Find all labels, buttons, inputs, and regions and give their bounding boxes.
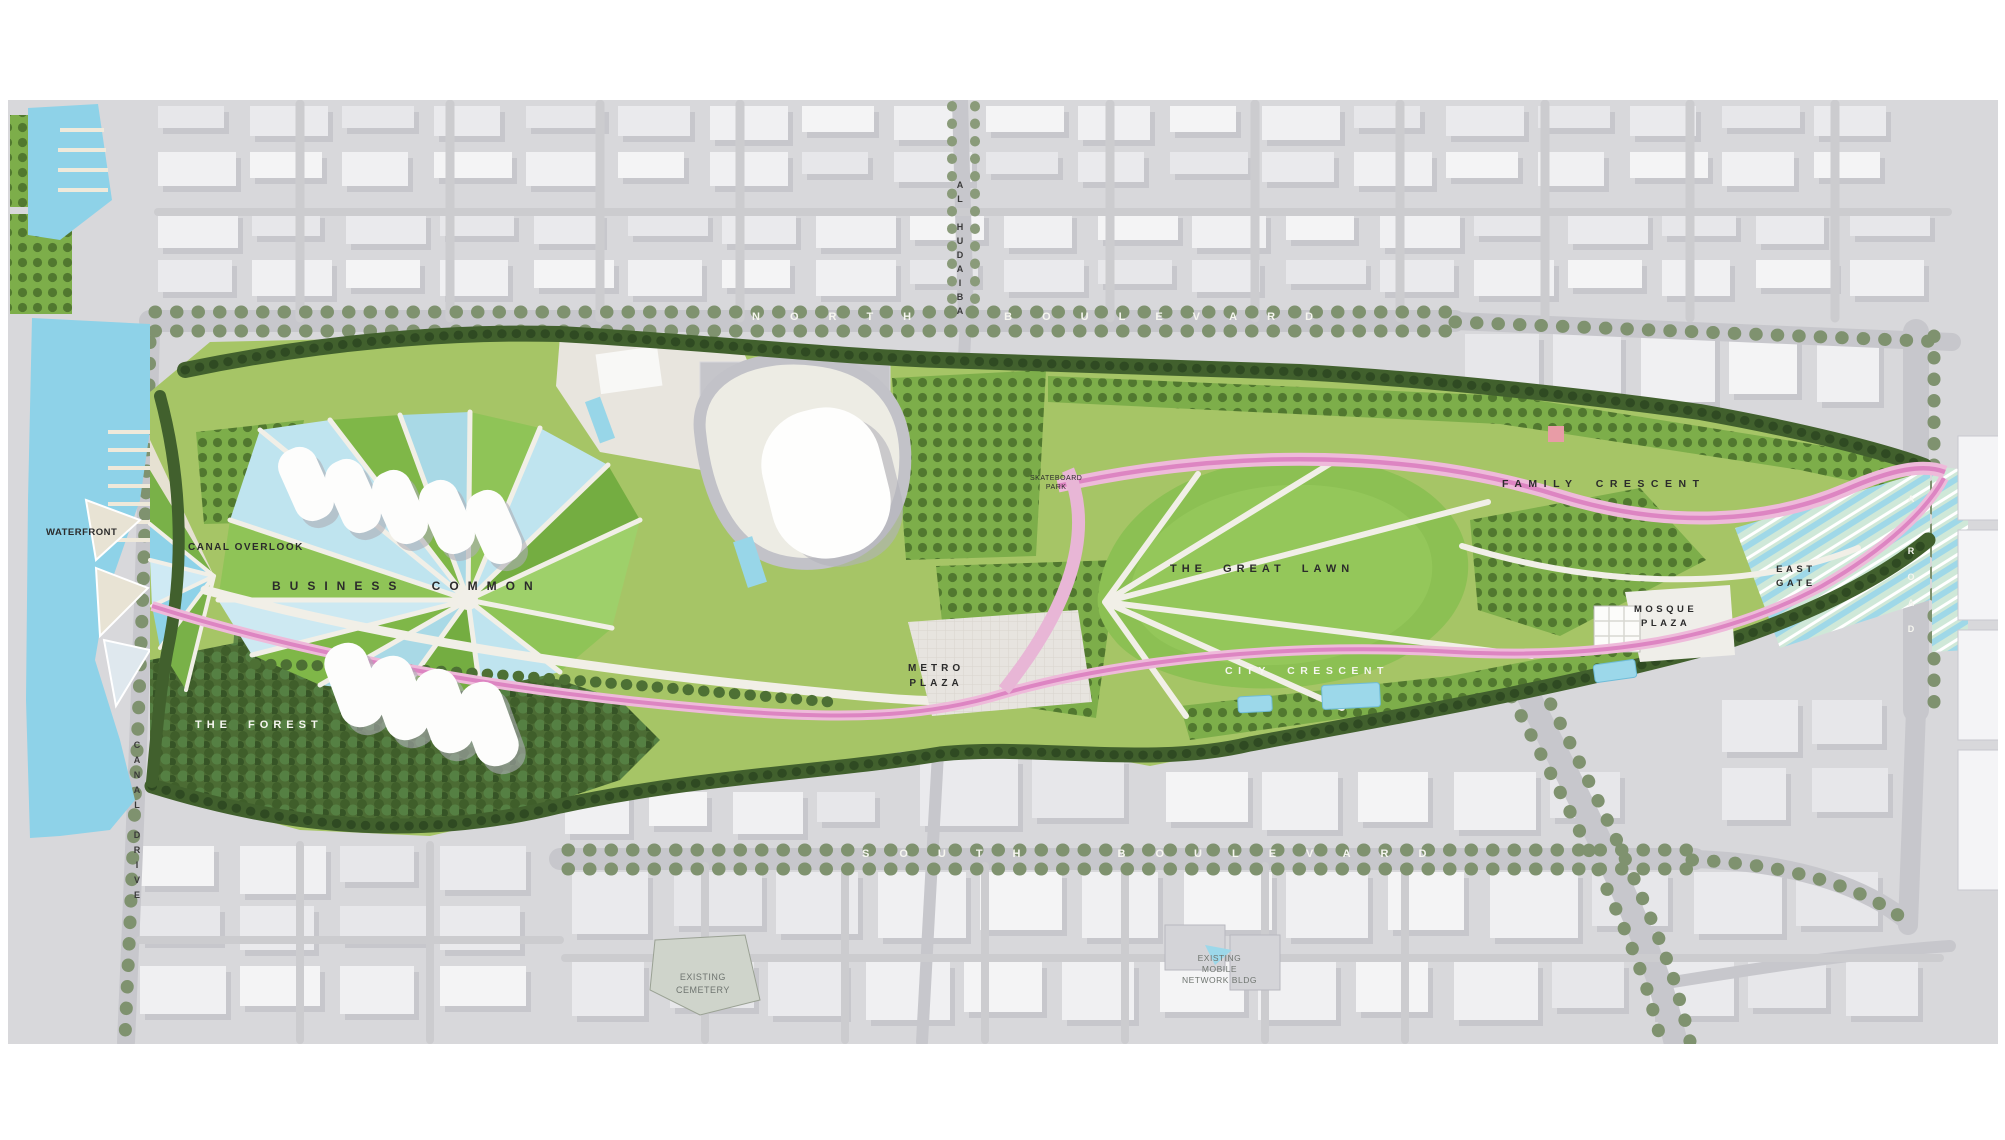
plaza-hub <box>458 590 478 610</box>
label-al-hudaiba-street: AL HUDAIBA <box>955 180 965 320</box>
label-skatepark: SKATEBOARD PARK <box>1030 474 1082 492</box>
city-building <box>964 962 1042 1012</box>
city-building <box>1388 872 1464 930</box>
label-metro-plaza: METRO PLAZA <box>908 661 964 691</box>
crescent-pavilion <box>1548 426 1564 442</box>
city-building <box>618 152 684 178</box>
city-building <box>340 846 414 882</box>
city-building <box>1812 700 1882 744</box>
city-building <box>1286 212 1354 240</box>
label-family-crescent: FAMILY CRESCENT <box>1502 478 1706 490</box>
city-building <box>1814 152 1880 178</box>
city-building <box>1812 768 1888 812</box>
label-north-boulevard: NORTH BOULEVARD <box>752 311 1343 323</box>
city-building <box>986 152 1058 174</box>
city-building <box>240 846 326 894</box>
pavilion-building <box>596 346 663 394</box>
city-building <box>1662 260 1730 296</box>
city-building <box>1354 106 1420 128</box>
city-building <box>1722 152 1794 186</box>
city-building <box>722 260 790 288</box>
city-building <box>1454 962 1538 1020</box>
city-building <box>1184 872 1272 930</box>
city-building <box>158 152 236 186</box>
city-building <box>733 792 803 834</box>
city-building <box>802 152 868 174</box>
city-building <box>986 106 1064 132</box>
city-building <box>878 872 966 938</box>
city-building <box>1846 962 1918 1016</box>
label-canal-drive-street: CANAL DRIVE <box>132 740 142 905</box>
city-building <box>1756 212 1824 244</box>
city-building <box>1722 106 1800 128</box>
city-building <box>710 152 788 186</box>
city-building <box>1454 772 1536 830</box>
city-building <box>1286 872 1368 938</box>
city-building <box>526 106 604 128</box>
city-building <box>1380 212 1460 248</box>
city-building <box>250 152 322 178</box>
city-building <box>1262 152 1334 182</box>
city-building <box>710 106 788 140</box>
city-building <box>1262 772 1338 830</box>
city-building <box>980 872 1062 930</box>
city-building <box>526 152 598 186</box>
city-building <box>1082 872 1158 938</box>
label-waterfront: WATERFRONT <box>46 527 117 538</box>
faint-right-blocks <box>1958 436 2002 890</box>
city-building <box>674 872 762 926</box>
city-building <box>649 792 707 826</box>
city-building <box>1446 152 1518 178</box>
label-mosque-plaza: MOSQUE PLAZA <box>1634 603 1697 631</box>
city-building <box>1004 212 1072 248</box>
city-building <box>1756 260 1836 288</box>
city-building <box>440 966 526 1006</box>
city-building <box>346 212 426 244</box>
city-building <box>250 106 328 136</box>
city-building <box>572 872 648 934</box>
city-building <box>140 846 214 886</box>
city-building <box>1286 260 1366 284</box>
label-south-boulevard: SOUTH BOULEVARD <box>862 848 1456 860</box>
city-building <box>1004 260 1084 292</box>
city-building <box>158 106 224 128</box>
orchard-grove <box>892 370 1046 560</box>
label-existing-cemetery: EXISTING CEMETERY <box>676 971 730 997</box>
city-building <box>252 260 332 296</box>
master-plan-map: WATERFRONT CANAL OVERLOOK BUSINESS COMMO… <box>0 0 2005 1140</box>
city-building <box>722 212 796 244</box>
city-building <box>340 966 414 1014</box>
city-building <box>1568 212 1648 244</box>
city-building <box>158 260 232 292</box>
city-building <box>1358 772 1428 822</box>
city-building <box>1814 106 1886 136</box>
city-building <box>628 260 702 296</box>
city-building <box>1170 152 1248 174</box>
city-building <box>140 966 226 1014</box>
site-plan-drawing <box>0 0 2005 1140</box>
city-building <box>618 106 690 136</box>
city-building <box>572 962 644 1016</box>
city-building <box>768 962 846 1016</box>
city-building <box>1032 758 1124 818</box>
city-building <box>1380 260 1454 292</box>
label-great-lawn: THE GREAT LAWN <box>1170 563 1354 575</box>
city-building <box>534 212 602 244</box>
city-building <box>1170 106 1236 132</box>
city-building <box>1850 260 1924 296</box>
city-building <box>1446 106 1524 136</box>
city-building <box>816 260 896 296</box>
city-building <box>1192 260 1260 292</box>
city-building <box>440 846 526 890</box>
city-building <box>240 966 320 1006</box>
city-building <box>346 260 420 288</box>
city-building <box>1722 768 1786 820</box>
city-building <box>1568 260 1642 288</box>
city-building <box>1356 962 1428 1012</box>
city-building <box>1722 700 1798 752</box>
label-business-common: BUSINESS COMMON <box>272 579 542 593</box>
city-building <box>1694 872 1782 934</box>
city-building <box>158 212 238 248</box>
city-building <box>817 792 875 822</box>
label-city-crescent: CITY CRESCENT <box>1225 665 1389 677</box>
city-building <box>1641 334 1715 402</box>
label-canal-overlook: CANAL OVERLOOK <box>188 542 304 553</box>
city-building <box>1262 106 1340 140</box>
city-building <box>1630 152 1708 178</box>
city-building <box>1490 872 1578 938</box>
city-building <box>1166 772 1248 822</box>
city-building <box>802 106 874 132</box>
label-east-gate: EAST GATE <box>1776 563 1816 591</box>
label-the-forest: THE FOREST <box>195 719 323 731</box>
city-building <box>866 962 950 1020</box>
city-building <box>1552 962 1624 1008</box>
city-building <box>1354 152 1432 186</box>
city-building <box>342 106 414 128</box>
city-building <box>342 152 408 186</box>
city-building <box>816 212 896 248</box>
label-existing-mobile-network: EXISTING MOBILE NETWORK BLDG <box>1182 953 1257 986</box>
city-building <box>434 106 500 136</box>
label-east-road-street: A ROAD <box>1906 494 1916 650</box>
